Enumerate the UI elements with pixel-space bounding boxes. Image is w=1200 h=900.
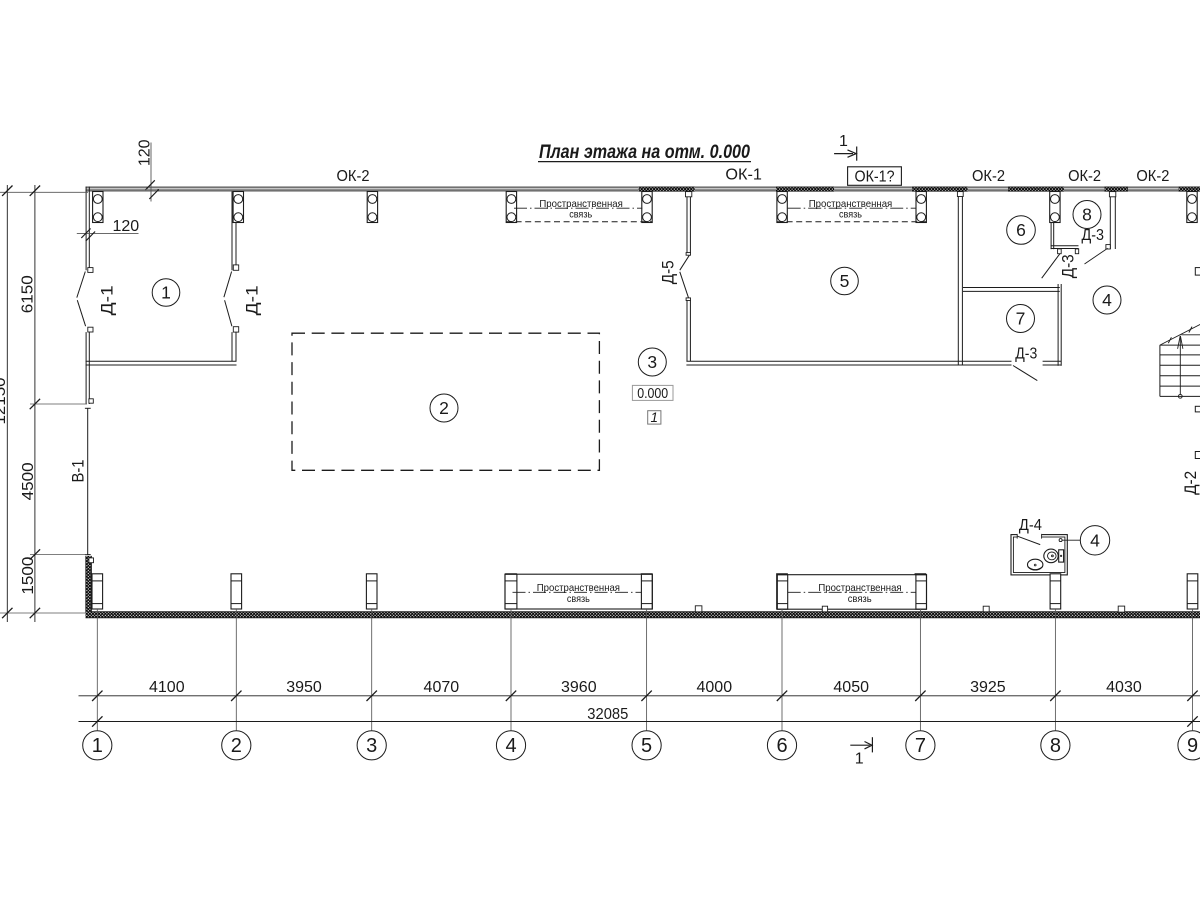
svg-text:Д-3: Д-3 [1082,227,1105,244]
svg-text:4: 4 [1102,290,1112,310]
svg-text:3925: 3925 [970,679,1006,696]
svg-text:120: 120 [112,218,139,235]
svg-text:Д-1: Д-1 [242,285,261,315]
svg-text:ОК-1: ОК-1 [725,167,762,184]
svg-text:5: 5 [840,271,850,291]
svg-text:ОК-2: ОК-2 [337,168,370,185]
svg-text:7: 7 [915,735,926,757]
svg-text:4: 4 [505,735,516,757]
svg-text:3: 3 [647,352,657,372]
svg-text:1: 1 [651,410,659,425]
svg-text:Пространственная: Пространственная [809,199,893,210]
svg-text:2: 2 [231,735,242,757]
svg-text:12150: 12150 [0,377,9,424]
svg-text:4050: 4050 [833,679,869,696]
svg-text:5: 5 [641,735,652,757]
svg-text:В-1: В-1 [69,460,88,483]
svg-text:4070: 4070 [424,679,460,696]
svg-text:32085: 32085 [587,706,628,723]
svg-text:3: 3 [366,735,377,757]
svg-text:8: 8 [1050,735,1061,757]
svg-text:Д-4: Д-4 [1019,517,1042,534]
svg-text:Д-5: Д-5 [659,260,678,284]
svg-text:Пространственная: Пространственная [537,583,620,594]
svg-text:9: 9 [1187,735,1198,757]
svg-text:1: 1 [855,750,864,767]
svg-text:3960: 3960 [561,679,597,696]
svg-text:связь: связь [569,209,592,220]
svg-text:Д-3: Д-3 [1059,254,1078,278]
svg-text:1: 1 [839,133,848,150]
svg-text:4500: 4500 [20,462,37,500]
svg-text:4000: 4000 [697,679,733,696]
svg-text:6150: 6150 [19,275,36,313]
svg-text:связь: связь [567,594,590,605]
svg-text:Д-2: Д-2 [1181,471,1200,495]
svg-text:6: 6 [776,735,787,757]
svg-text:1500: 1500 [20,556,37,594]
svg-text:1: 1 [92,735,103,757]
svg-text:связь: связь [839,209,862,220]
svg-text:ОК-2: ОК-2 [972,168,1005,185]
svg-text:8: 8 [1082,205,1092,225]
svg-text:120: 120 [137,139,154,166]
svg-text:План этажа на отм. 0.000: План этажа на отм. 0.000 [539,142,750,163]
svg-text:Д-1: Д-1 [97,285,116,315]
svg-text:0.000: 0.000 [637,386,668,402]
svg-text:2: 2 [439,398,449,418]
svg-text:4030: 4030 [1106,679,1142,696]
svg-text:ОК-2: ОК-2 [1068,168,1101,185]
svg-text:Пространственная: Пространственная [539,199,623,210]
svg-text:3950: 3950 [286,679,322,696]
svg-text:6: 6 [1016,220,1026,240]
svg-text:связь: связь [848,594,872,605]
svg-text:4100: 4100 [149,679,185,696]
svg-text:7: 7 [1016,309,1026,329]
svg-text:4: 4 [1090,530,1100,550]
svg-text:ОК-1?: ОК-1? [855,169,895,186]
svg-text:ОК-2: ОК-2 [1136,168,1169,185]
svg-text:Пространственная: Пространственная [818,583,901,594]
svg-text:1: 1 [161,283,171,303]
svg-text:Д-3: Д-3 [1015,345,1037,362]
